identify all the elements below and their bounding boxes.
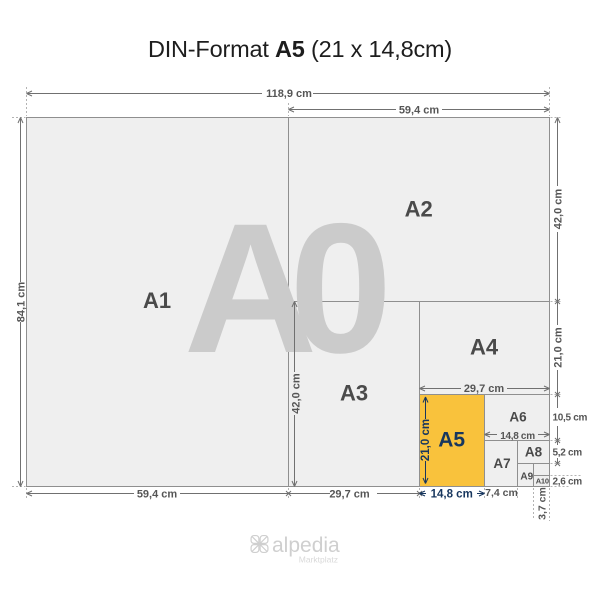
svg-text:Marktplatz: Marktplatz bbox=[299, 555, 338, 565]
svg-text:A2: A2 bbox=[405, 197, 433, 222]
svg-text:A4: A4 bbox=[470, 335, 499, 360]
svg-text:A9: A9 bbox=[520, 471, 533, 482]
svg-text:21,0 cm: 21,0 cm bbox=[553, 327, 565, 368]
svg-text:A5: A5 bbox=[438, 429, 465, 452]
svg-text:A6: A6 bbox=[509, 410, 527, 425]
svg-text:14,8 cm: 14,8 cm bbox=[500, 431, 535, 442]
svg-text:21,0 cm: 21,0 cm bbox=[420, 419, 432, 461]
svg-text:10,5 cm: 10,5 cm bbox=[553, 413, 588, 424]
svg-text:14,8 cm: 14,8 cm bbox=[431, 489, 473, 501]
svg-text:59,4 cm: 59,4 cm bbox=[137, 489, 178, 501]
svg-text:A7: A7 bbox=[493, 456, 510, 471]
svg-text:118,9 cm: 118,9 cm bbox=[266, 88, 312, 100]
svg-text:29,7 cm: 29,7 cm bbox=[329, 489, 370, 501]
svg-text:A8: A8 bbox=[525, 445, 543, 460]
svg-text:3,7 cm: 3,7 cm bbox=[537, 487, 549, 520]
svg-text:A10: A10 bbox=[536, 477, 549, 486]
svg-text:7,4 cm: 7,4 cm bbox=[485, 487, 518, 499]
svg-text:A0: A0 bbox=[184, 186, 386, 392]
svg-text:DIN-Format A5 (21 x 14,8cm): DIN-Format A5 (21 x 14,8cm) bbox=[148, 36, 452, 62]
svg-text:29,7 cm: 29,7 cm bbox=[464, 383, 505, 395]
svg-text:59,4 cm: 59,4 cm bbox=[399, 105, 440, 117]
svg-text:42,0 cm: 42,0 cm bbox=[291, 373, 303, 414]
svg-text:42,0 cm: 42,0 cm bbox=[553, 189, 565, 230]
svg-text:2,6 cm: 2,6 cm bbox=[553, 477, 583, 488]
svg-text:A3: A3 bbox=[340, 381, 368, 406]
svg-text:A1: A1 bbox=[143, 288, 171, 313]
svg-text:5,2 cm: 5,2 cm bbox=[553, 448, 583, 459]
svg-text:84,1 cm: 84,1 cm bbox=[16, 282, 28, 323]
